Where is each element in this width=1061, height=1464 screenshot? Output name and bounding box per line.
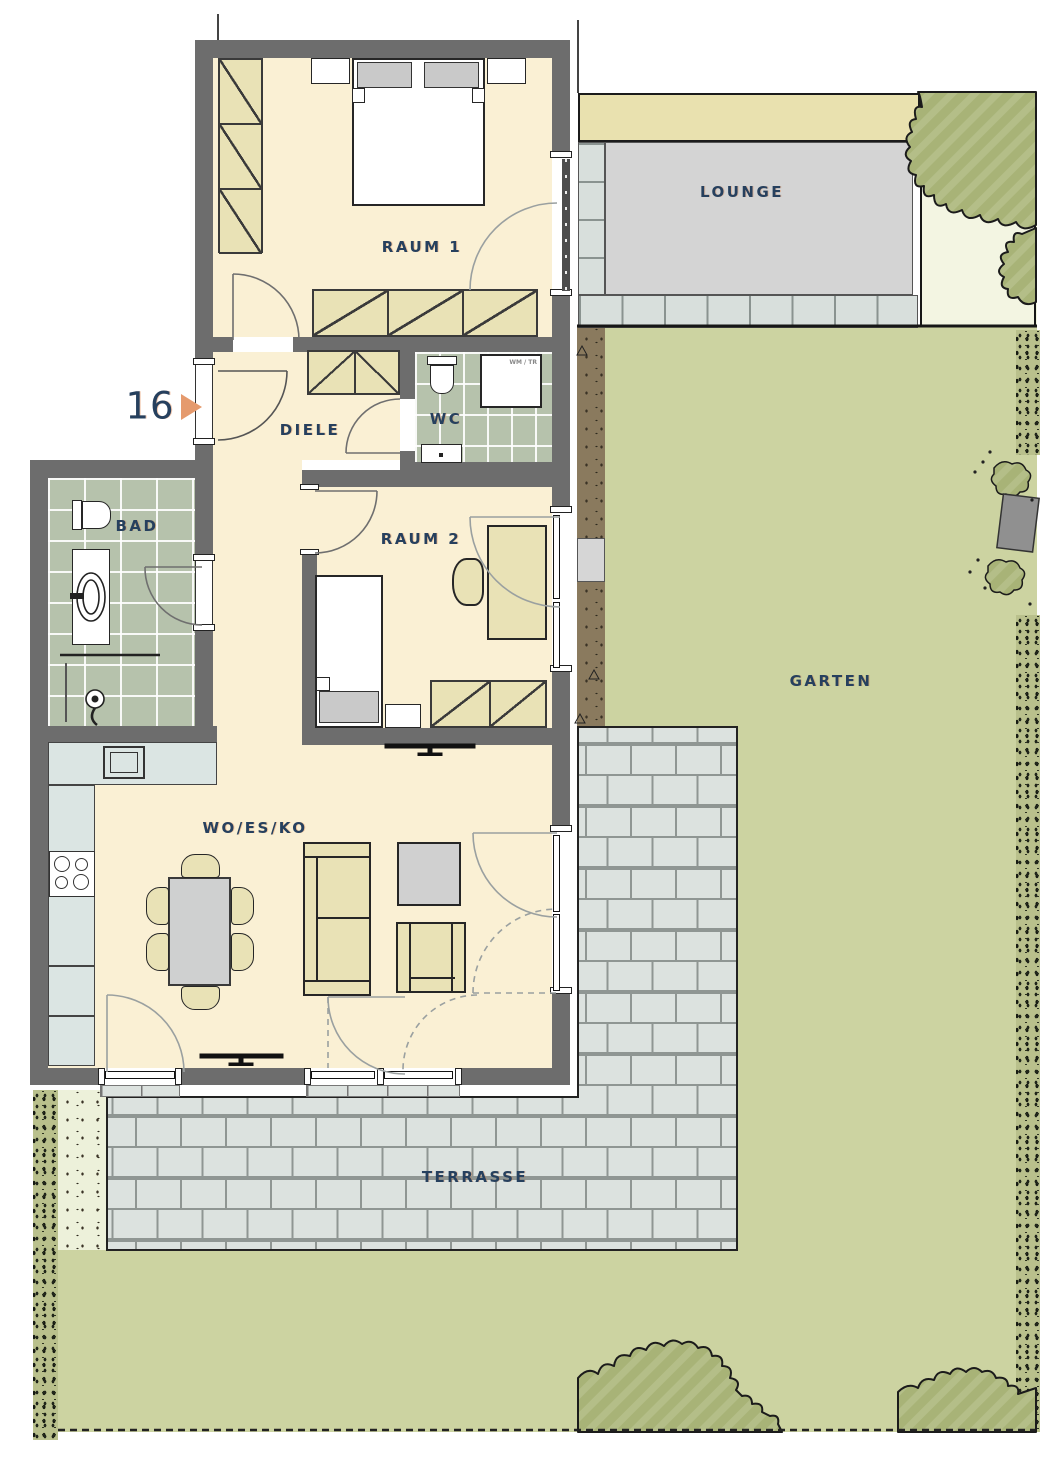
room-label-raum1: RAUM 1 [382,238,462,256]
wohnen-window-right-1 [553,835,560,912]
lounge-floor [605,142,913,295]
window-post [175,1068,182,1085]
armchair [396,922,466,993]
wall [30,742,48,1068]
sofa-back [316,856,318,982]
bad-toilet-bowl [82,501,111,529]
raum2-duvet-corner [316,677,330,691]
room-label-diele: DIELE [280,421,341,439]
room-label-wc: WC [430,410,463,428]
outdoor-label-garten: GARTEN [790,672,873,690]
property-line-top-left [217,14,219,40]
wall-cap [550,506,572,513]
raum2-nightstand [385,704,421,728]
planting-strip-left [58,1090,107,1250]
burner [54,856,70,872]
wall [400,451,415,462]
wall [552,670,570,832]
wall [195,630,213,728]
washer-dryer-label: WM / TR [509,359,537,366]
wall-cap [300,549,319,555]
kitchen-cooktop [49,851,95,897]
wc-toilet-tank [427,356,457,365]
wc-basin-drain [439,453,443,457]
raum1-wardrobe-bottom [312,289,538,337]
property-line-top-right [577,20,579,93]
raum1-duvet-corner-right [472,88,485,103]
window-post [98,1068,105,1085]
raum1-pillow-left [357,62,412,88]
floor-corridor [213,460,302,742]
wall-cap [193,624,215,631]
stepping-stone [577,538,605,582]
diele-wardrobe [307,350,400,395]
outdoor-label-terrasse: TERRASSE [422,1168,528,1186]
courtyard-top-right [920,93,1037,326]
floor-bad [48,478,195,726]
bad-vanity [72,549,110,645]
garden-area-south [58,1250,1037,1432]
washer-dryer-unit: WM / TR [480,354,542,408]
kitchen-tall-unit-2 [48,1016,95,1066]
soil-strip-speckle [577,327,605,727]
raum2-desk-chair [452,558,484,606]
lounge-tile-column [578,142,605,295]
sofa-arm-top [305,856,369,858]
garden-area-right [605,327,1037,727]
floor-wohnen [48,742,552,1068]
dining-chair [231,887,254,925]
bad-toilet-tank [72,500,82,530]
unit-direction-arrow-icon [181,394,202,420]
armchair-back [409,977,455,979]
outdoor-label-lounge: LOUNGE [700,183,784,201]
raum2-window-1 [553,515,560,599]
kitchen-sink-basin [110,752,138,773]
raum1-terrace-door [562,159,570,291]
window-post [304,1068,311,1085]
wall-cap [550,151,572,158]
raum2-pillow [319,691,379,723]
floor-raum2-doorway [302,487,317,552]
wall [195,337,233,352]
room-label-raum2: RAUM 2 [381,530,461,548]
wall-cap [193,438,215,445]
raum1-duvet-corner-left [352,88,365,103]
lounge-tile-row [578,295,918,328]
room-label-bad: BAD [116,517,159,535]
hedge-right-lower [1016,615,1040,1432]
wall [400,337,415,399]
raum1-nightstand-right [487,58,526,84]
wall-cap [193,554,215,561]
floorplan-canvas: WM / TR [0,0,1061,1464]
wall-cap [300,484,319,490]
dining-chair [181,854,220,878]
raum2-window-2 [553,602,560,668]
wall [195,58,213,364]
dining-table [168,877,231,986]
burner [73,874,89,890]
terrace-door-glazing [105,1071,175,1079]
wohnen-window-right-2 [553,914,560,991]
raum2-wardrobe [430,680,547,728]
window-post [377,1068,384,1085]
wall [195,478,213,560]
wall-cap [550,825,572,832]
wohnen-window-bottom-2 [384,1071,453,1079]
hedge-right-upper [1016,330,1040,455]
hedge-left [33,1090,58,1440]
raum2-desk [487,525,547,640]
wc-toilet-bowl [430,365,454,394]
dining-chair [231,933,254,971]
wall [30,478,48,726]
room-label-wohnen: WO/ES/KO [202,819,307,837]
dining-chair [181,986,220,1010]
wall [30,1068,100,1085]
wall [552,993,570,1085]
unit-number: 16 [125,385,174,428]
wall [302,470,570,487]
window-post [455,1068,462,1085]
burner [75,858,88,871]
dining-chair [146,887,169,925]
wall [30,460,213,478]
terrace-threshold-left [100,1085,180,1097]
sofa-seat-divider [316,917,369,919]
sofa [303,842,371,996]
armchair-arm-left [409,924,411,991]
raum1-nightstand-left [311,58,350,84]
wall [552,40,570,158]
terrace-threshold-right [306,1085,460,1097]
garden-area-east [737,727,1037,1250]
coffee-table [397,842,461,906]
lounge-planter-strip [578,93,920,142]
wall [180,1068,306,1085]
wohnen-window-bottom-1 [311,1071,375,1079]
dining-chair [146,933,169,971]
raum1-wardrobe-left [218,58,263,253]
wall [30,726,217,742]
bad-door-opening [195,560,213,630]
wall [552,295,570,513]
wall [195,40,570,58]
raum1-pillow-right [424,62,479,88]
sofa-arm-bottom [305,980,369,982]
burner [55,876,68,889]
wall [302,728,570,745]
kitchen-tall-unit-1 [48,966,95,1016]
wall-cap [193,358,215,365]
armchair-arm-right [451,924,453,991]
